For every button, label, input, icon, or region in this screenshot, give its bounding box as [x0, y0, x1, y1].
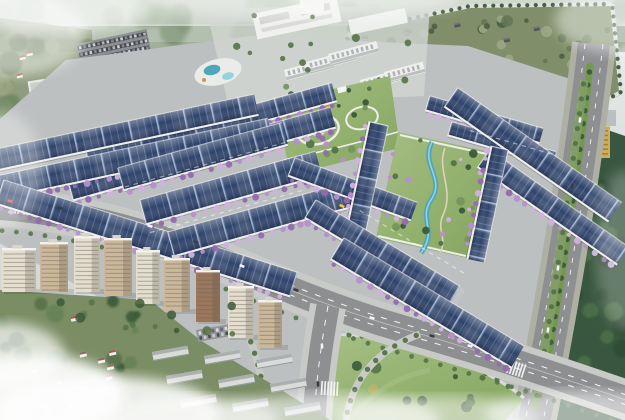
light-haze-overlay: [0, 0, 625, 420]
aerial-render-image: [0, 0, 625, 420]
